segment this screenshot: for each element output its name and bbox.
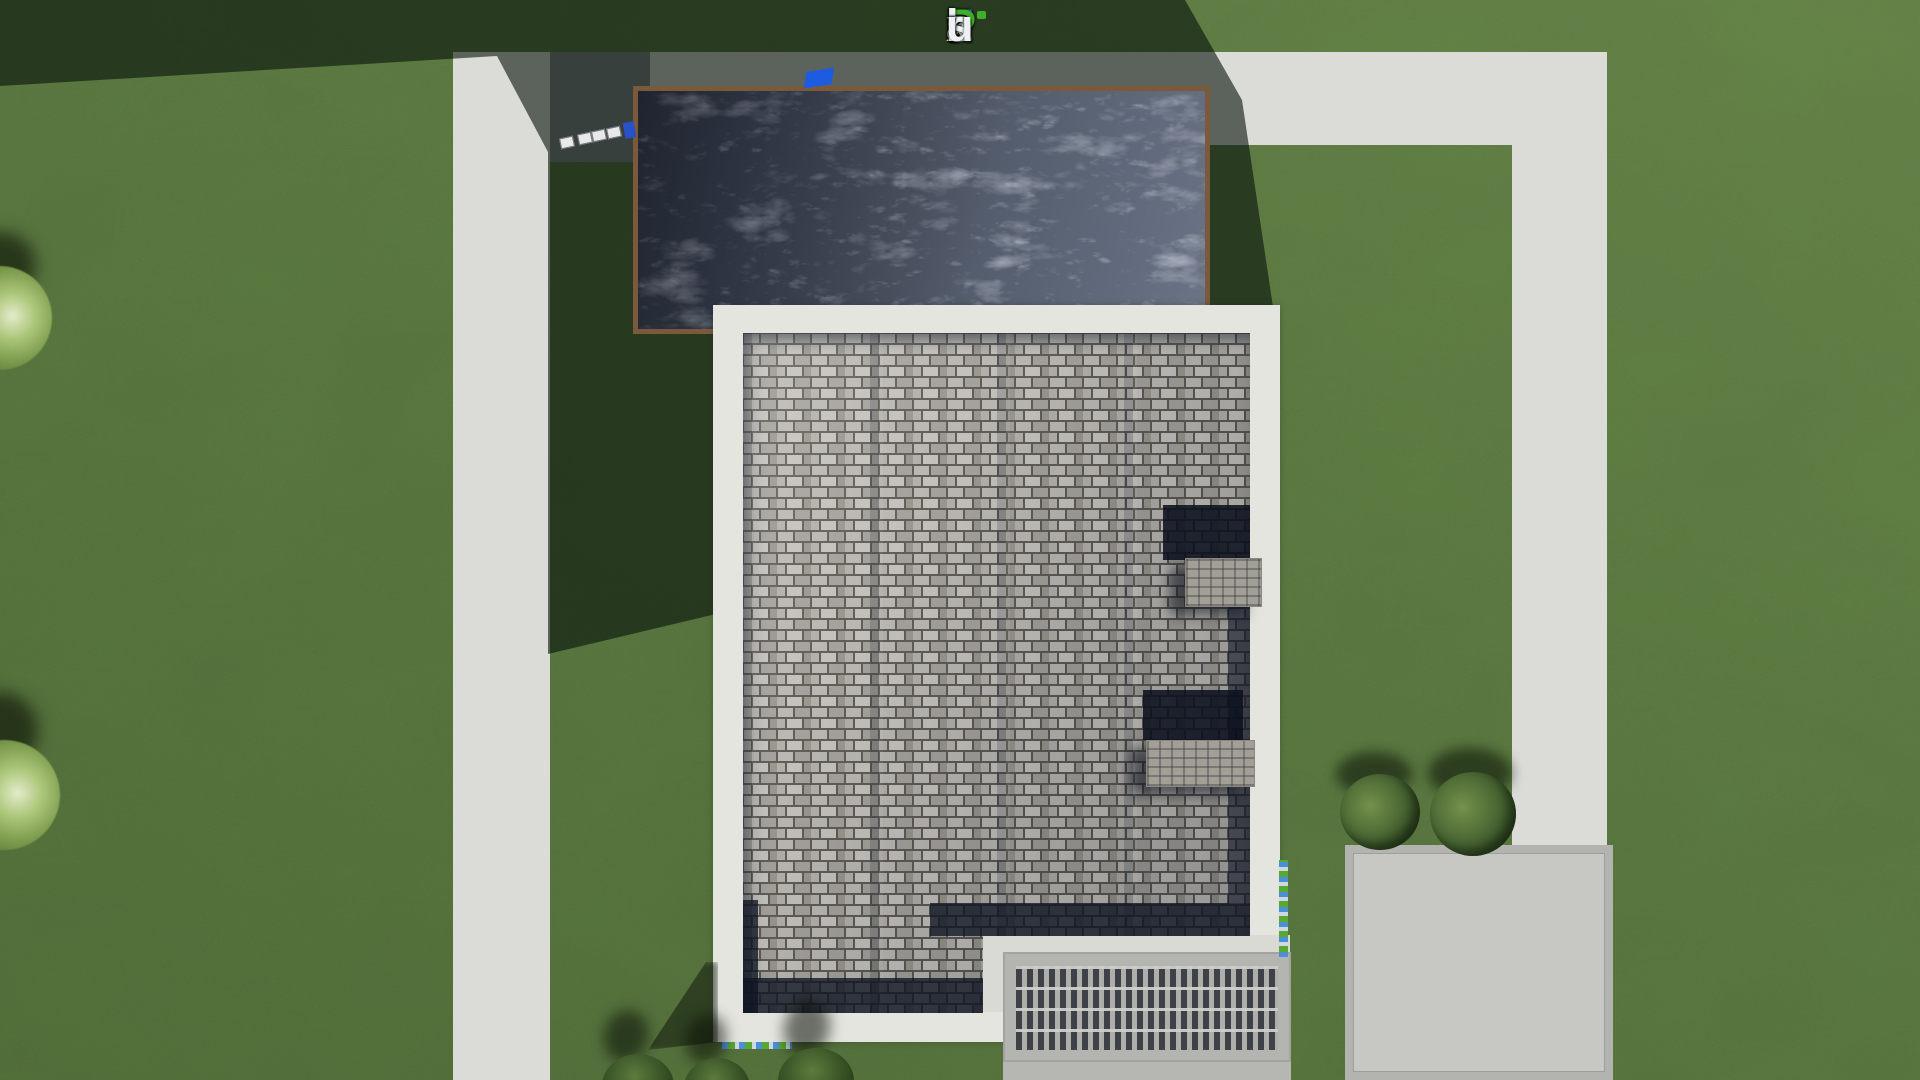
chimney-block-1 bbox=[1185, 558, 1262, 607]
bush-1 bbox=[1340, 774, 1420, 850]
logo-letter: u bbox=[946, 2, 973, 50]
chimney-block-2 bbox=[1146, 740, 1255, 787]
roof-recess-2 bbox=[1143, 690, 1243, 740]
roof-shadow-band-step bbox=[930, 903, 1250, 936]
bush-2 bbox=[1430, 772, 1516, 856]
pergola bbox=[1003, 952, 1291, 1062]
garage-roof-shadow-overlay bbox=[638, 91, 1205, 329]
pergola-crossbars bbox=[1016, 966, 1278, 1050]
aerial-site-plan-render: FixPlans.ru bbox=[0, 0, 1920, 1080]
pergola-slats bbox=[1016, 966, 1278, 1050]
roof-recess-1 bbox=[1163, 505, 1250, 560]
flower-strip-right bbox=[1279, 860, 1288, 957]
patio-square bbox=[1345, 845, 1613, 1080]
roof-shadow-band-bottom bbox=[743, 978, 983, 1013]
flower-strip-bottom bbox=[722, 1042, 792, 1049]
logo-i-dot-green bbox=[977, 11, 986, 19]
garden-path-right bbox=[1512, 52, 1607, 845]
house-roof-tiles bbox=[743, 333, 1250, 1013]
garden-path-left bbox=[453, 52, 550, 1080]
garage-roof bbox=[633, 86, 1210, 334]
